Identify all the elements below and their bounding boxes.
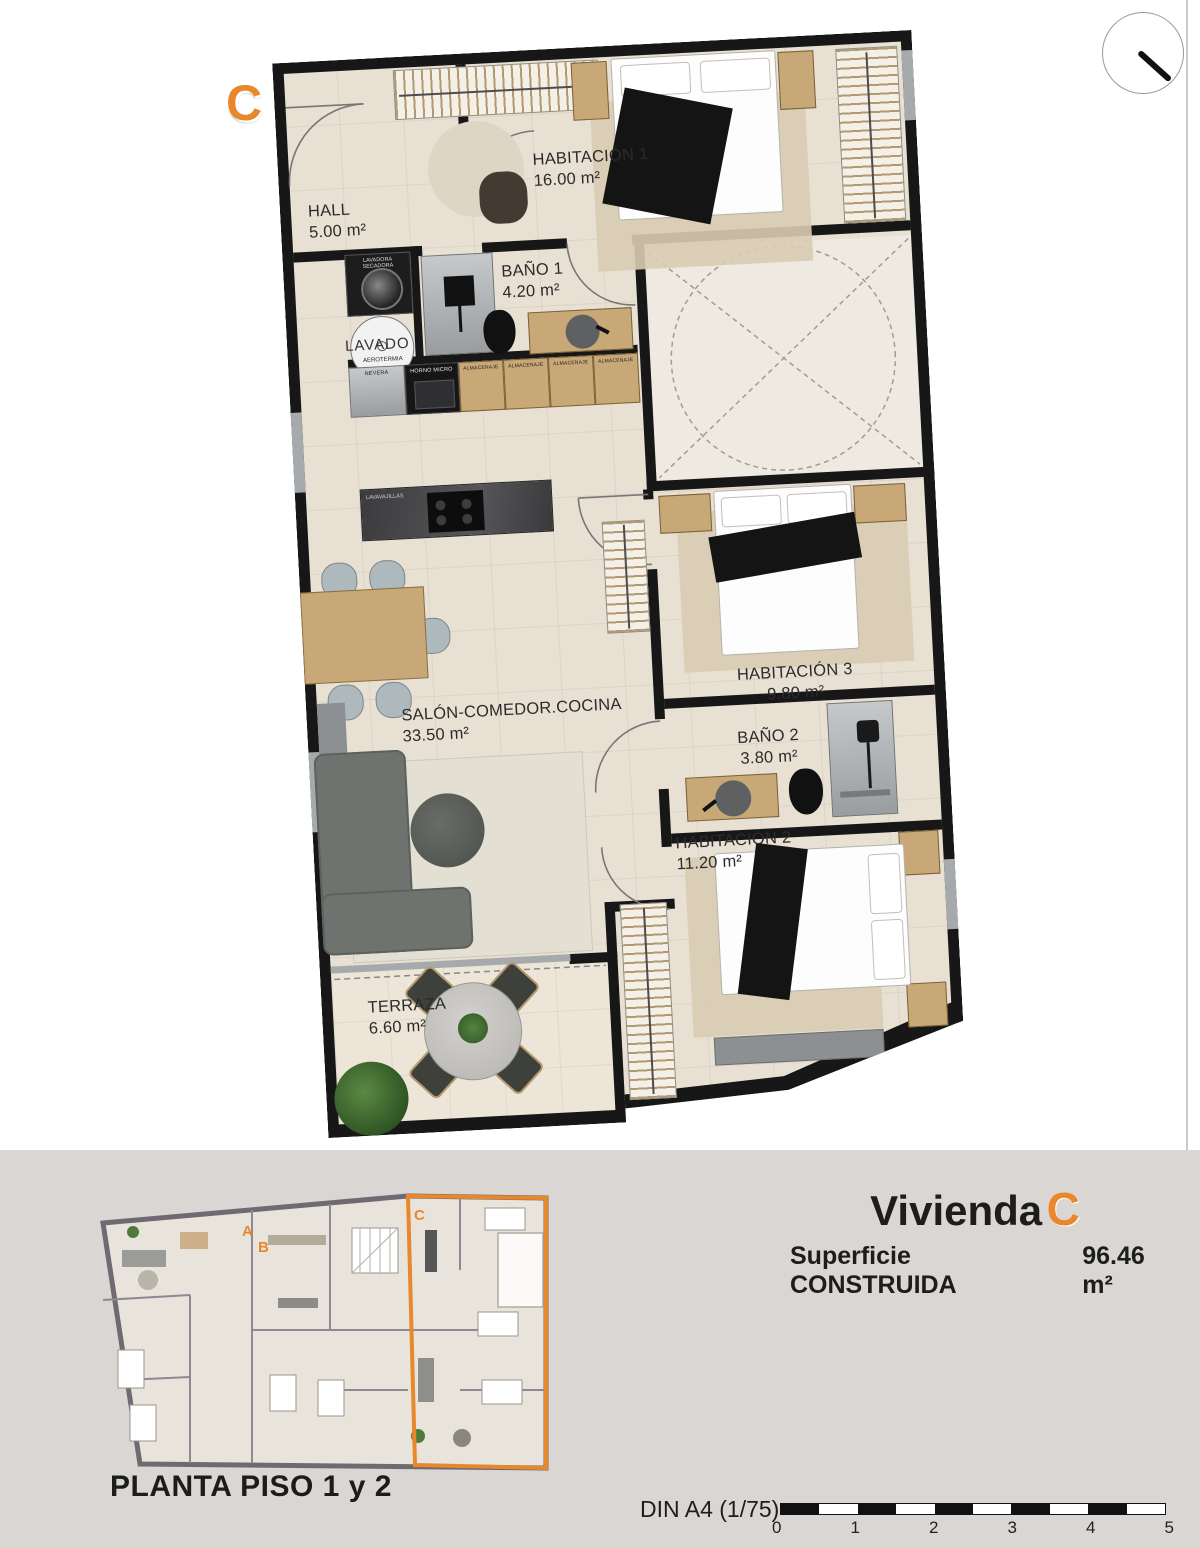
key-plan-caption: PLANTA PISO 1 y 2 bbox=[110, 1470, 392, 1504]
scale-tick: 3 bbox=[1008, 1518, 1017, 1538]
bedroom1-nightstand bbox=[777, 50, 816, 110]
room-label-hall: HALL5.00 m² bbox=[307, 199, 367, 245]
washer-dryer: LAVADORA SECADORA bbox=[344, 252, 413, 317]
scale-tick: 0 bbox=[772, 1518, 781, 1538]
built-area-value: 96.46 m² bbox=[1082, 1242, 1170, 1300]
scale-bar bbox=[780, 1503, 1166, 1515]
key-plan-unit-a: A bbox=[242, 1223, 253, 1240]
kitchen-sink-faucet bbox=[444, 275, 476, 307]
floor-plan-sheet: C bbox=[0, 0, 1200, 1548]
bedroom1-armchair bbox=[478, 170, 529, 224]
title-block-band: A B C PLANTA PISO 1 y 2 Vivienda C Super… bbox=[0, 1150, 1200, 1548]
storage-cabinet: ALMACENAJE bbox=[593, 353, 641, 405]
storage-cabinet: ALMACENAJE bbox=[548, 355, 596, 407]
room-label-bedroom1: HABITACIÓN 116.00 m² bbox=[532, 144, 650, 193]
bedroom3-nightstand bbox=[853, 483, 907, 524]
built-area-line: Superficie CONSTRUIDA 96.46 m² bbox=[790, 1242, 1170, 1300]
key-plan-unit-b: B bbox=[258, 1239, 269, 1256]
bedroom3-bed bbox=[713, 484, 859, 656]
scale-ticks: 0 1 2 3 4 5 bbox=[772, 1518, 1174, 1538]
dining-table bbox=[300, 586, 429, 684]
storage-cabinet: ALMACENAJE bbox=[503, 357, 551, 409]
bedroom1-side-wardrobe bbox=[835, 46, 906, 224]
fridge: NEVERA bbox=[348, 365, 407, 418]
unit-title: Vivienda C bbox=[820, 1182, 1130, 1236]
key-plan-unit-c: C bbox=[414, 1207, 425, 1224]
scale-tick: 1 bbox=[851, 1518, 860, 1538]
laundry-label: LAVADO bbox=[345, 335, 410, 355]
bath2-vanity bbox=[685, 773, 779, 822]
key-plan: A B C bbox=[30, 1180, 590, 1480]
room-label-bath1: BAÑO 14.20 m² bbox=[501, 259, 565, 305]
north-compass-icon bbox=[1102, 12, 1184, 94]
built-area-label: Superficie CONSTRUIDA bbox=[790, 1242, 1048, 1300]
room-label-bath2: BAÑO 23.80 m² bbox=[698, 723, 840, 773]
scale-label: DIN A4 (1/75) bbox=[640, 1496, 779, 1523]
scale-tick: 4 bbox=[1086, 1518, 1095, 1538]
scale-tick: 5 bbox=[1165, 1518, 1174, 1538]
bath1-vanity bbox=[528, 307, 634, 354]
storage-cabinet: ALMACENAJE bbox=[458, 360, 506, 412]
bedroom2-nightstand bbox=[906, 981, 948, 1027]
unit-title-prefix: Vivienda bbox=[870, 1187, 1042, 1234]
room-label-bedroom2: HABITACIÓN 211.20 m² bbox=[675, 827, 793, 876]
apartment-floor-plan: LAVADORA SECADORA AEROTERMIA LAVADO NEVE… bbox=[272, 30, 968, 1142]
kitchen-island: LAVAVAJILLAS bbox=[360, 479, 554, 541]
tv-unit bbox=[317, 703, 348, 756]
unit-title-letter: C bbox=[1047, 1183, 1080, 1235]
room-label-terrace: TERRAZA6.60 m² bbox=[367, 994, 448, 1041]
bedroom1-top-wardrobe bbox=[393, 59, 600, 120]
oven-microwave: HORNO MICRO bbox=[404, 362, 461, 415]
sofa-chaise bbox=[321, 886, 474, 956]
page-border bbox=[1186, 0, 1188, 1150]
bedroom1-bed bbox=[610, 50, 783, 220]
scale-tick: 2 bbox=[929, 1518, 938, 1538]
unit-letter-label: C bbox=[226, 74, 262, 132]
bedroom1-nightstand bbox=[571, 61, 610, 121]
hall-wardrobe bbox=[602, 520, 651, 634]
bedroom3-nightstand bbox=[658, 493, 712, 534]
